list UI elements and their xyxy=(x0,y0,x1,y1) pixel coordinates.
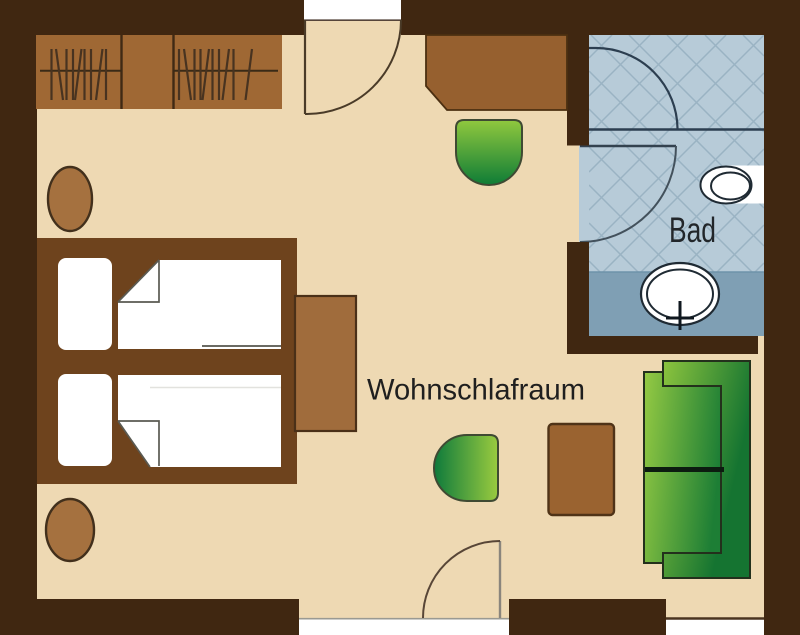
svg-text:Wohnschlafraum: Wohnschlafraum xyxy=(367,374,585,407)
svg-text:Bad: Bad xyxy=(669,211,716,250)
